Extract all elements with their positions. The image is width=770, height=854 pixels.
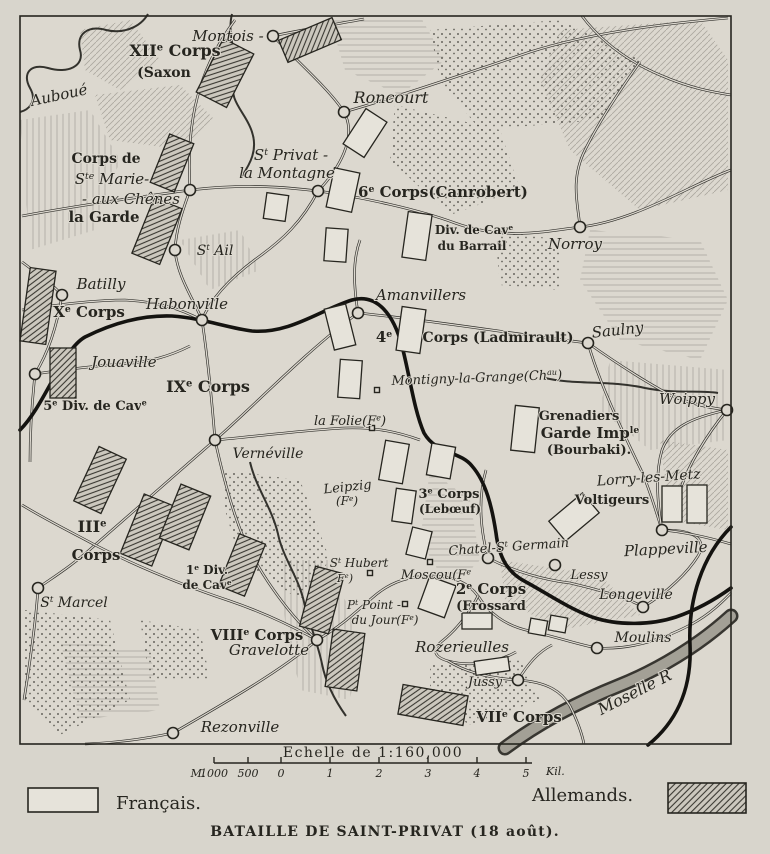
town-marker xyxy=(170,245,181,256)
town-marker xyxy=(550,560,561,571)
legend-swatch-german xyxy=(668,783,746,813)
unit-french xyxy=(324,228,348,262)
map-label-roncourt: Roncourt xyxy=(353,88,430,107)
unit-french xyxy=(662,486,682,522)
map-caption: BATAILLE DE SAINT-PRIVAT (18 août). xyxy=(210,824,560,840)
town-marker xyxy=(592,643,603,654)
map-label-bourbaki: (Bourbaki). xyxy=(547,443,631,458)
unit-french xyxy=(462,613,492,629)
map-label-habonville: Habonville xyxy=(145,295,228,313)
building-marker xyxy=(375,388,380,393)
map-label-du-barrail: du Barrail xyxy=(438,239,507,253)
map-label-du-jour: du Jour(Fe) xyxy=(352,613,419,627)
map-label-fourth-corps-name: Corps (Ladmirault) xyxy=(423,330,574,346)
map-label-jussy: Jussy xyxy=(465,675,503,690)
town-marker xyxy=(339,107,350,118)
town-marker xyxy=(575,222,586,233)
map-label-jouaville: Jouaville xyxy=(88,353,157,371)
town-marker xyxy=(210,435,221,446)
map-label-la-folie: la Folie(Fe) xyxy=(314,413,386,429)
town-marker xyxy=(312,635,323,646)
scale-tick-label: 3 xyxy=(425,767,432,780)
map-label-fifth-div-cav: 5e Div. de Cave xyxy=(43,397,147,414)
map-label-div-cav-barrail: Div. de Cave xyxy=(435,223,514,237)
map-label-la-montagne: la Montagne xyxy=(239,164,335,182)
map-label-first-div-cav: de Cave xyxy=(182,578,232,592)
map-label-grenadiers: Grenadiers xyxy=(539,409,620,424)
map-label-longeville: Longeville xyxy=(598,587,673,603)
map-label-batilly: Batilly xyxy=(76,275,126,293)
scale-tick-label: 2 xyxy=(375,767,383,780)
town-marker xyxy=(57,290,68,301)
town-marker xyxy=(513,675,524,686)
map-label-montois: Montois - xyxy=(191,27,263,45)
map-label-aux-chenes: - aux Chênes xyxy=(82,190,180,208)
scale-tick-label: 500 xyxy=(238,767,259,780)
legend: Français. Allemands. xyxy=(28,783,746,814)
map-label-first-div: 1e Div. xyxy=(186,563,228,577)
building-marker xyxy=(428,560,433,565)
town-marker xyxy=(268,31,279,42)
town-marker xyxy=(657,525,668,536)
map-label-voltigeurs: Voltigeurs xyxy=(574,493,649,508)
unit-french xyxy=(263,193,288,222)
scale-tick-label: 4 xyxy=(473,767,481,780)
map-label-lessy: Lessy xyxy=(569,568,608,583)
map-label-gravelotte: Gravelotte xyxy=(229,641,309,659)
map-label-frossard: (Frossard xyxy=(456,599,526,614)
scale-tick-label: 0 xyxy=(278,767,285,780)
unit-french xyxy=(396,307,426,354)
town-marker xyxy=(33,583,44,594)
map-label-amanvillers: Amanvillers xyxy=(374,286,467,304)
map-label-rozerieulles: Rozerieulles xyxy=(414,638,509,656)
building-marker xyxy=(368,571,373,576)
town-marker xyxy=(197,315,208,326)
town-marker xyxy=(313,186,324,197)
map-label-st-hubert-fe: Fe) xyxy=(336,572,353,585)
building-marker xyxy=(403,602,408,607)
map-page: XIIe Corps(SaxonMontois -AubouéRoncourtC… xyxy=(0,0,770,854)
map-label-woippy: Woippy xyxy=(659,390,715,408)
scale-title: Echelle de 1:160,000 xyxy=(283,745,463,761)
unit-german xyxy=(50,348,76,398)
map-label-verneville: Vernéville xyxy=(233,446,304,462)
town-marker xyxy=(30,369,41,380)
map-label-iii-corps-name: Corps xyxy=(72,546,121,564)
scale-tick-label: 5 xyxy=(523,767,530,780)
unit-french xyxy=(426,443,455,479)
legend-label-german: Allemands. xyxy=(531,785,633,806)
map-label-corps-de: Corps de xyxy=(71,151,140,167)
unit-french xyxy=(338,359,363,398)
scale-unit-suffix: Kil. xyxy=(545,765,565,778)
map-label-xe-corps: Xe Corps xyxy=(53,303,125,321)
unit-french xyxy=(528,618,547,636)
town-marker xyxy=(353,308,364,319)
scale-tick-label: 1 xyxy=(327,767,334,780)
town-marker xyxy=(185,185,196,196)
map-label-norroy: Norroy xyxy=(547,235,603,253)
map-label-viie-corps: VIIe Corps xyxy=(475,708,562,726)
map-label-leboeuf: (Lebœuf) xyxy=(419,502,481,516)
scale-unit-prefix: M. xyxy=(190,767,206,780)
town-marker xyxy=(638,602,649,613)
town-marker xyxy=(168,728,179,739)
map-label-rezonville: Rezonville xyxy=(200,718,280,736)
unit-french xyxy=(548,615,567,633)
legend-label-french: Français. xyxy=(116,793,201,814)
map-label-moulins: Moulins xyxy=(614,630,672,646)
unit-french xyxy=(687,485,707,523)
map-label-la-garde: la Garde xyxy=(68,208,139,226)
map-label-garde-imp: Garde Imple xyxy=(541,424,640,442)
unit-french xyxy=(392,488,416,523)
map-label-sixth-corps: 6e Corps(Canrobert) xyxy=(358,183,528,201)
legend-swatch-french xyxy=(28,788,98,812)
map-label-ixe-corps: IXe Corps xyxy=(166,377,250,396)
map-label-st-ail: St Ail xyxy=(197,243,234,259)
unit-french xyxy=(511,405,540,452)
map-label-leipzig-fe: (Fe) xyxy=(336,494,358,508)
map-label-saxon: (Saxon xyxy=(137,65,191,81)
map-canvas: XIIe Corps(SaxonMontois -AubouéRoncourtC… xyxy=(0,0,770,854)
map-label-pt-point: Pt Point - xyxy=(346,598,401,612)
